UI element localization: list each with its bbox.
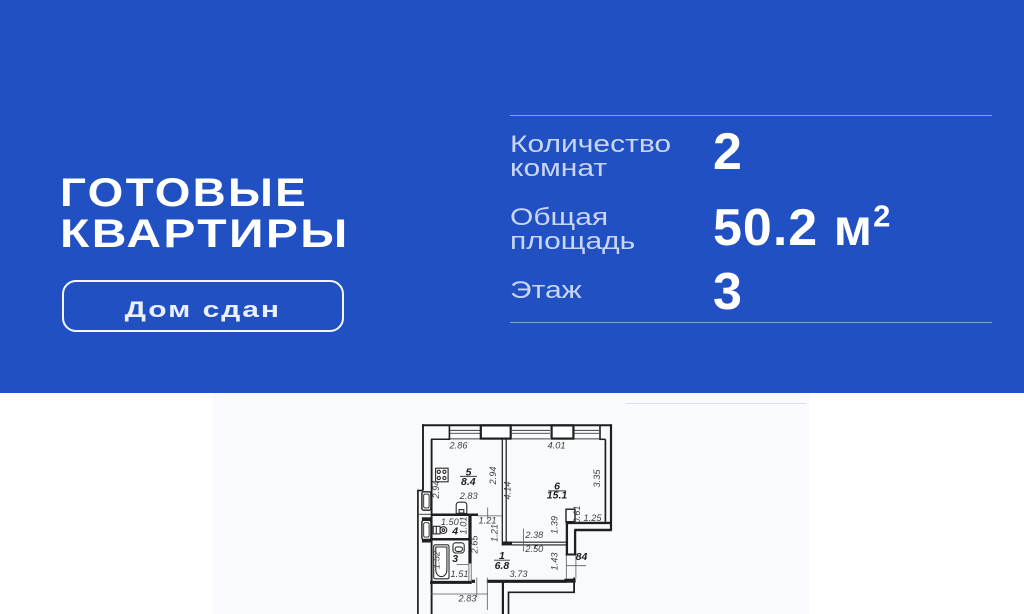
- svg-text:4: 4: [451, 526, 458, 538]
- svg-text:2.94: 2.94: [431, 481, 441, 500]
- svg-text:1.21: 1.21: [479, 516, 497, 526]
- svg-text:8.4: 8.4: [461, 476, 476, 488]
- svg-text:4.01: 4.01: [548, 441, 566, 451]
- svg-text:3.73: 3.73: [510, 569, 529, 579]
- svg-text:1.52: 1.52: [432, 551, 442, 569]
- svg-text:1.21: 1.21: [490, 524, 500, 542]
- svg-text:1.01: 1.01: [459, 516, 469, 534]
- svg-text:1.50: 1.50: [441, 517, 460, 527]
- svg-text:84: 84: [576, 551, 588, 563]
- svg-text:4.14: 4.14: [503, 482, 513, 500]
- svg-text:15.1: 15.1: [547, 489, 568, 501]
- svg-text:1.39: 1.39: [550, 516, 560, 534]
- svg-text:2.86: 2.86: [449, 441, 469, 451]
- svg-text:6.8: 6.8: [495, 560, 510, 572]
- svg-text:1.43: 1.43: [550, 552, 560, 571]
- svg-text:2.94: 2.94: [488, 467, 498, 486]
- svg-text:0.61: 0.61: [572, 506, 582, 524]
- svg-text:3.35: 3.35: [592, 469, 602, 488]
- svg-text:2.38: 2.38: [524, 530, 544, 540]
- svg-text:2.65: 2.65: [470, 535, 480, 555]
- svg-text:1.25: 1.25: [584, 513, 603, 523]
- svg-text:2.50: 2.50: [524, 544, 544, 554]
- svg-text:2.83: 2.83: [458, 594, 478, 604]
- svg-text:3: 3: [452, 553, 458, 565]
- svg-text:2.83: 2.83: [459, 491, 479, 501]
- svg-text:1.51: 1.51: [451, 569, 469, 579]
